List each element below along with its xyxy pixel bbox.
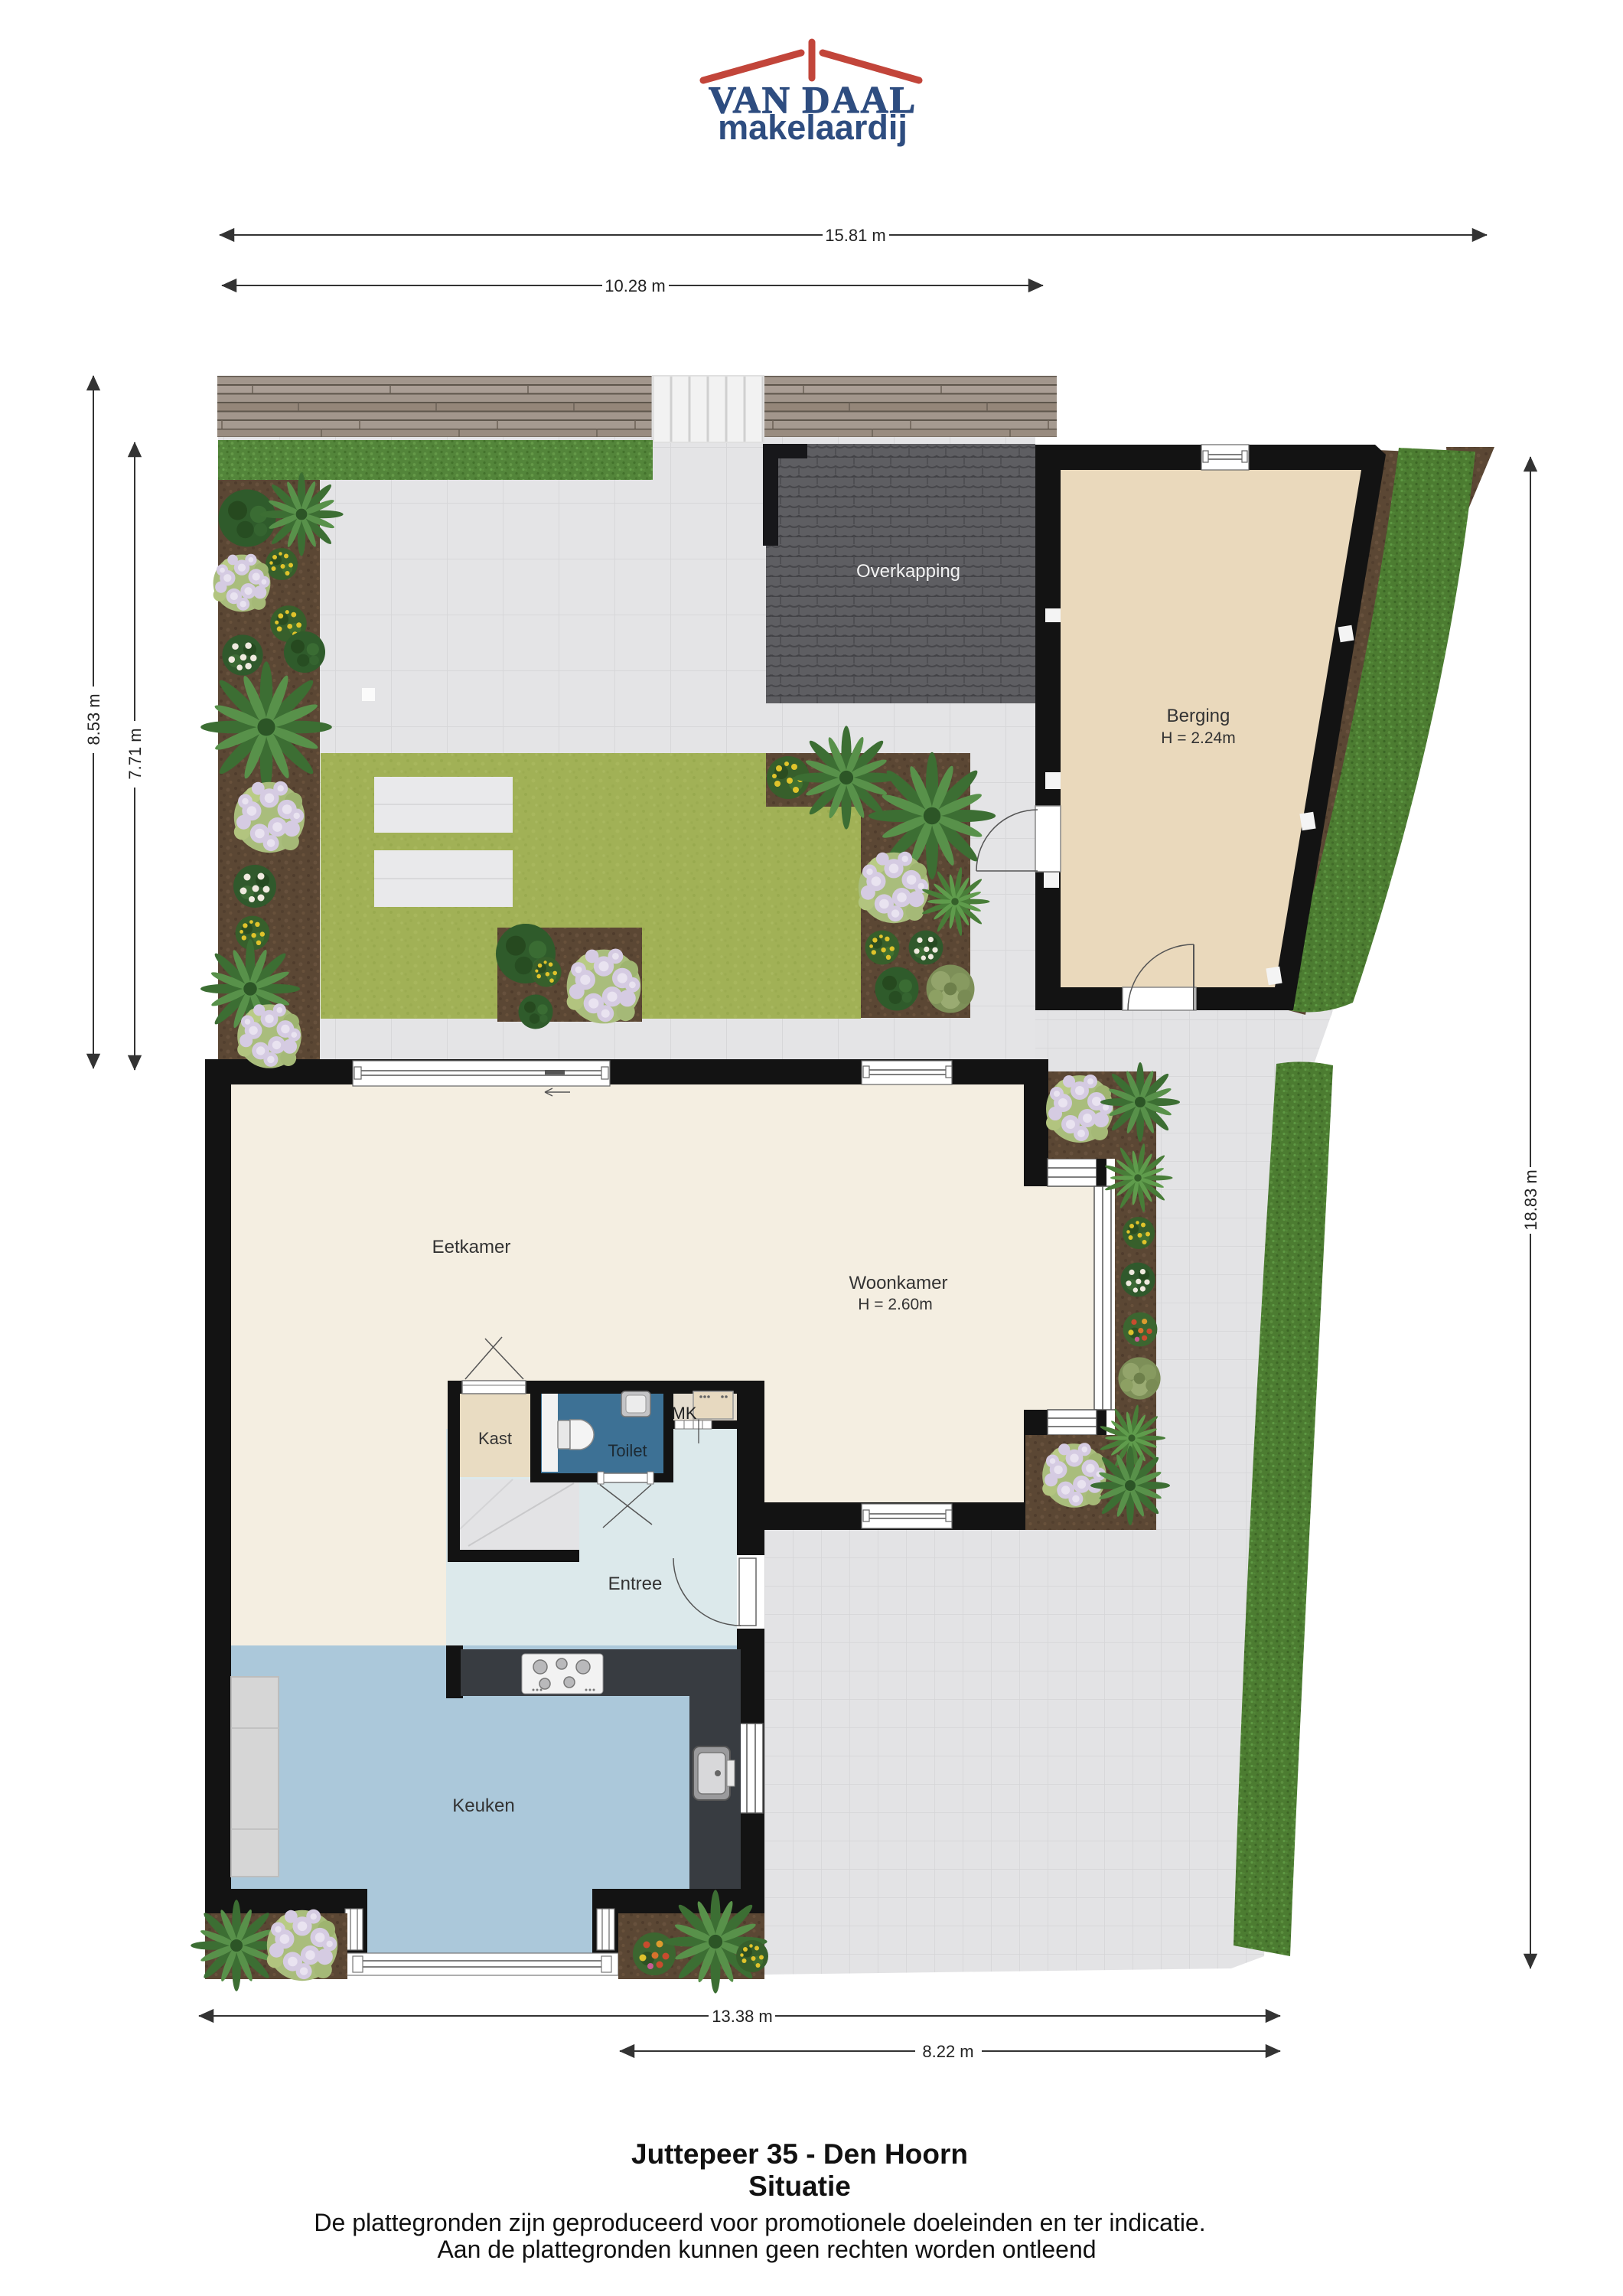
svg-text:13.38 m: 13.38 m <box>712 2007 773 2026</box>
svg-text:Keuken: Keuken <box>452 1795 514 1816</box>
svg-text:H = 2.24m: H = 2.24m <box>1161 729 1235 747</box>
svg-text:10.28 m: 10.28 m <box>605 276 666 295</box>
svg-text:Aan de plattegronden kunnen ge: Aan de plattegronden kunnen geen rechten… <box>437 2236 1096 2263</box>
svg-text:MK: MK <box>672 1404 697 1423</box>
svg-text:Berging: Berging <box>1167 706 1230 726</box>
svg-text:makelaardij: makelaardij <box>718 108 908 147</box>
svg-text:18.83 m: 18.83 m <box>1521 1169 1540 1231</box>
svg-text:Eetkamer: Eetkamer <box>432 1237 511 1257</box>
svg-text:Situatie: Situatie <box>748 2170 851 2202</box>
svg-text:Toilet: Toilet <box>608 1441 647 1460</box>
svg-text:8.22 m: 8.22 m <box>922 2042 973 2061</box>
svg-text:Juttepeer 35 - Den Hoorn: Juttepeer 35 - Den Hoorn <box>631 2138 968 2170</box>
svg-text:8.53 m: 8.53 m <box>84 693 103 745</box>
svg-text:Overkapping: Overkapping <box>856 561 960 582</box>
svg-text:Entree: Entree <box>608 1574 663 1594</box>
svg-text:De plattegronden zijn geproduc: De plattegronden zijn geproduceerd voor … <box>314 2209 1205 2236</box>
svg-text:H = 2.60m: H = 2.60m <box>858 1296 932 1313</box>
svg-text:Kast: Kast <box>478 1429 512 1448</box>
svg-text:7.71 m: 7.71 m <box>125 728 145 779</box>
svg-text:Woonkamer: Woonkamer <box>849 1273 948 1293</box>
svg-text:15.81 m: 15.81 m <box>825 226 886 245</box>
